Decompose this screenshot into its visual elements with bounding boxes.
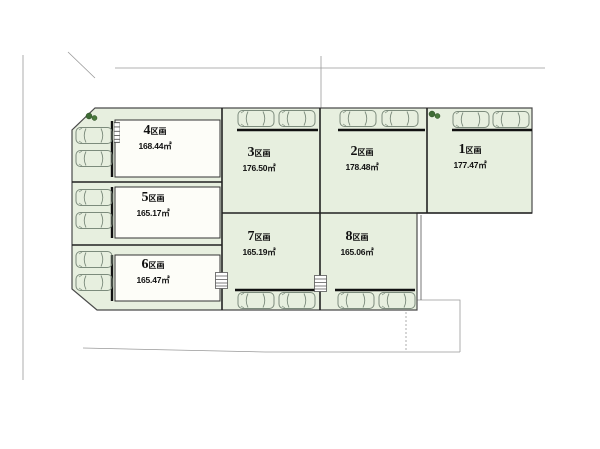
site-plan-canvas: 1区画 177.47㎡ 2区画 178.48㎡ 3区画 176.50㎡ 4区画 … <box>0 0 600 449</box>
stairs-icon <box>315 276 327 292</box>
stairs-icon <box>114 123 120 143</box>
building-footprint <box>115 120 220 177</box>
stairs-icon <box>216 273 228 289</box>
building-footprints <box>115 120 220 301</box>
site-plan-drawing <box>0 0 600 449</box>
building-footprint <box>115 255 220 301</box>
building-footprint <box>115 187 220 238</box>
